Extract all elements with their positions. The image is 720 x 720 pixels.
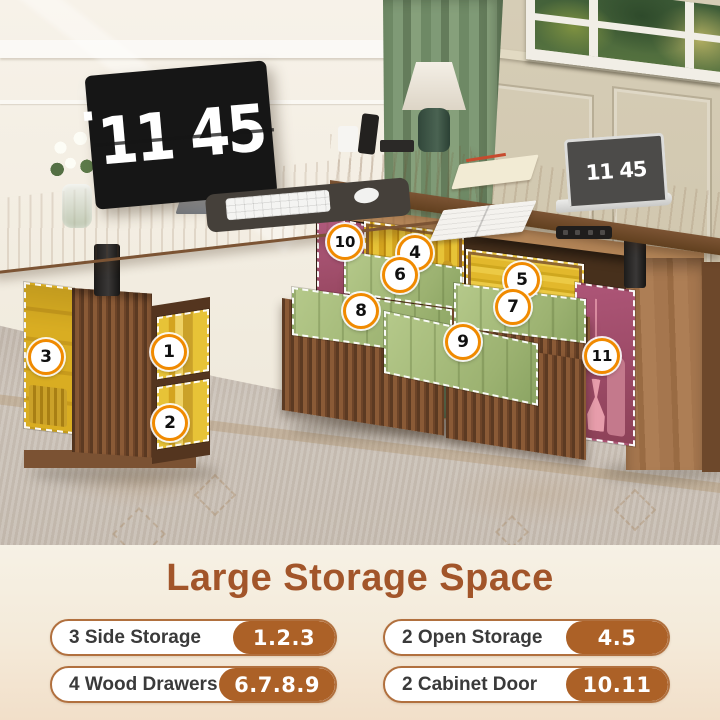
- feature-label: 3 Side Storage: [69, 627, 201, 649]
- feature-list: 3 Side Storage 1.2.3 2 Open Storage 4.5 …: [50, 619, 670, 703]
- storage-basket: [29, 385, 67, 428]
- feature-number-badge: 10.11: [566, 668, 668, 701]
- monitor-flip-clock: 11 45: [95, 90, 268, 180]
- product-photo: 11 45 11 45 1 2 3 4 5 6 7 8 9 10 11: [0, 0, 720, 545]
- feature-label: 4 Wood Drawers: [69, 674, 218, 696]
- laptop: 11 45: [564, 133, 668, 207]
- callout-badge-10: 10: [327, 224, 363, 260]
- vase-silhouette: [585, 377, 607, 432]
- cabinet-slat-front: [72, 288, 152, 458]
- rug-motif: [112, 507, 166, 545]
- right-cabinet-side: [702, 262, 720, 472]
- callout-badge-7: 7: [495, 289, 531, 325]
- feature-number-badge: 1.2.3: [233, 621, 335, 654]
- dock-tray: [380, 140, 414, 152]
- rug-motif: [614, 489, 656, 531]
- monitor: 11 45: [85, 60, 278, 209]
- rug-motif: [495, 515, 529, 545]
- callout-badge-11: 11: [584, 338, 620, 374]
- callout-badge-6: 6: [382, 257, 418, 293]
- feature-number-badge: 6.7.8.9: [219, 668, 335, 701]
- table-lamp-base: [418, 108, 450, 152]
- feature-side-storage: 3 Side Storage 1.2.3: [50, 619, 337, 656]
- feature-cabinet-door: 2 Cabinet Door 10.11: [383, 666, 670, 703]
- feature-number-badge: 4.5: [566, 621, 668, 654]
- charger: [338, 126, 358, 152]
- feature-open-storage: 2 Open Storage 4.5: [383, 619, 670, 656]
- info-panel: Large Storage Space 3 Side Storage 1.2.3…: [0, 545, 720, 720]
- right-cabinet-front: [626, 258, 704, 470]
- callout-badge-3: 3: [28, 339, 64, 375]
- glass-vase: [62, 184, 92, 228]
- product-infographic: 11 45 11 45 1 2 3 4 5 6 7 8 9 10 11 Larg…: [0, 0, 720, 720]
- feature-label: 2 Cabinet Door: [402, 674, 537, 696]
- laptop-flip-clock: 11 45: [585, 157, 647, 185]
- height-adjust-keypad: [556, 226, 612, 239]
- callout-badge-8: 8: [343, 293, 379, 329]
- rug-motif: [194, 474, 236, 516]
- callout-badge-2: 2: [152, 405, 188, 441]
- panel-title: Large Storage Space: [0, 557, 720, 599]
- callout-badge-9: 9: [445, 324, 481, 360]
- window-mullion: [589, 0, 598, 57]
- callout-badge-1: 1: [151, 334, 187, 370]
- feature-label: 2 Open Storage: [402, 627, 542, 649]
- feature-wood-drawers: 4 Wood Drawers 6.7.8.9: [50, 666, 337, 703]
